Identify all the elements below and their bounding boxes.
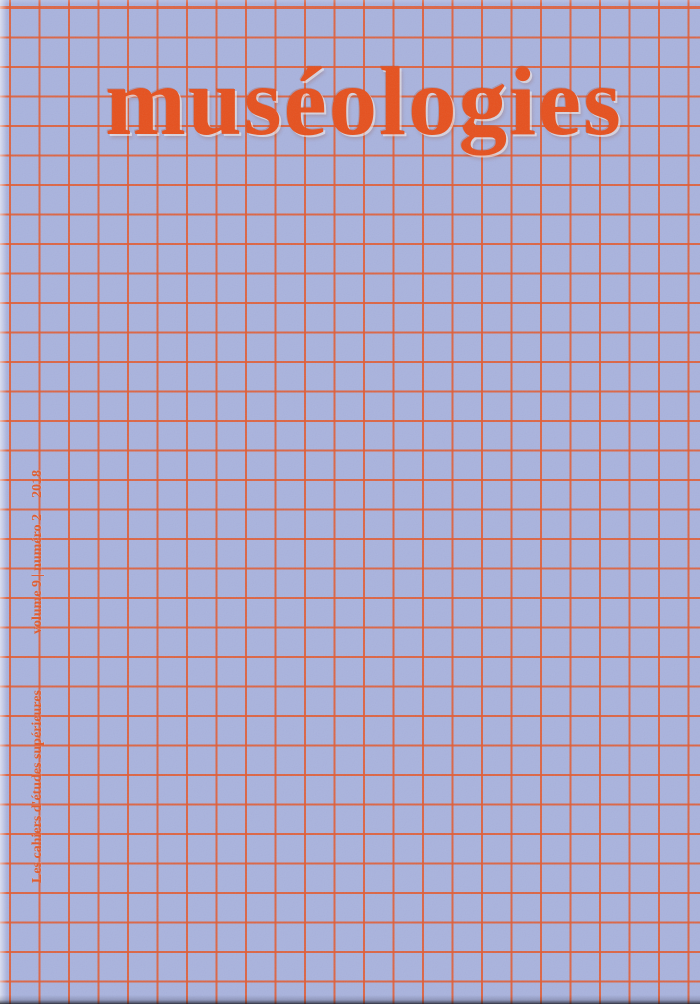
separator-bar: | [30, 571, 45, 580]
volume-issue-year: volume 9|numéro 22018 [29, 470, 46, 634]
journal-title: muséologies [0, 53, 700, 150]
issue-label: numéro 2 [30, 514, 45, 571]
year-label: 2018 [30, 470, 45, 514]
magazine-cover: muséologies volume 9|numéro 22018 Les ca… [0, 0, 700, 1004]
volume-label: volume 9 [30, 580, 45, 634]
series-title: Les cahiers d'études supérieures [29, 690, 46, 883]
